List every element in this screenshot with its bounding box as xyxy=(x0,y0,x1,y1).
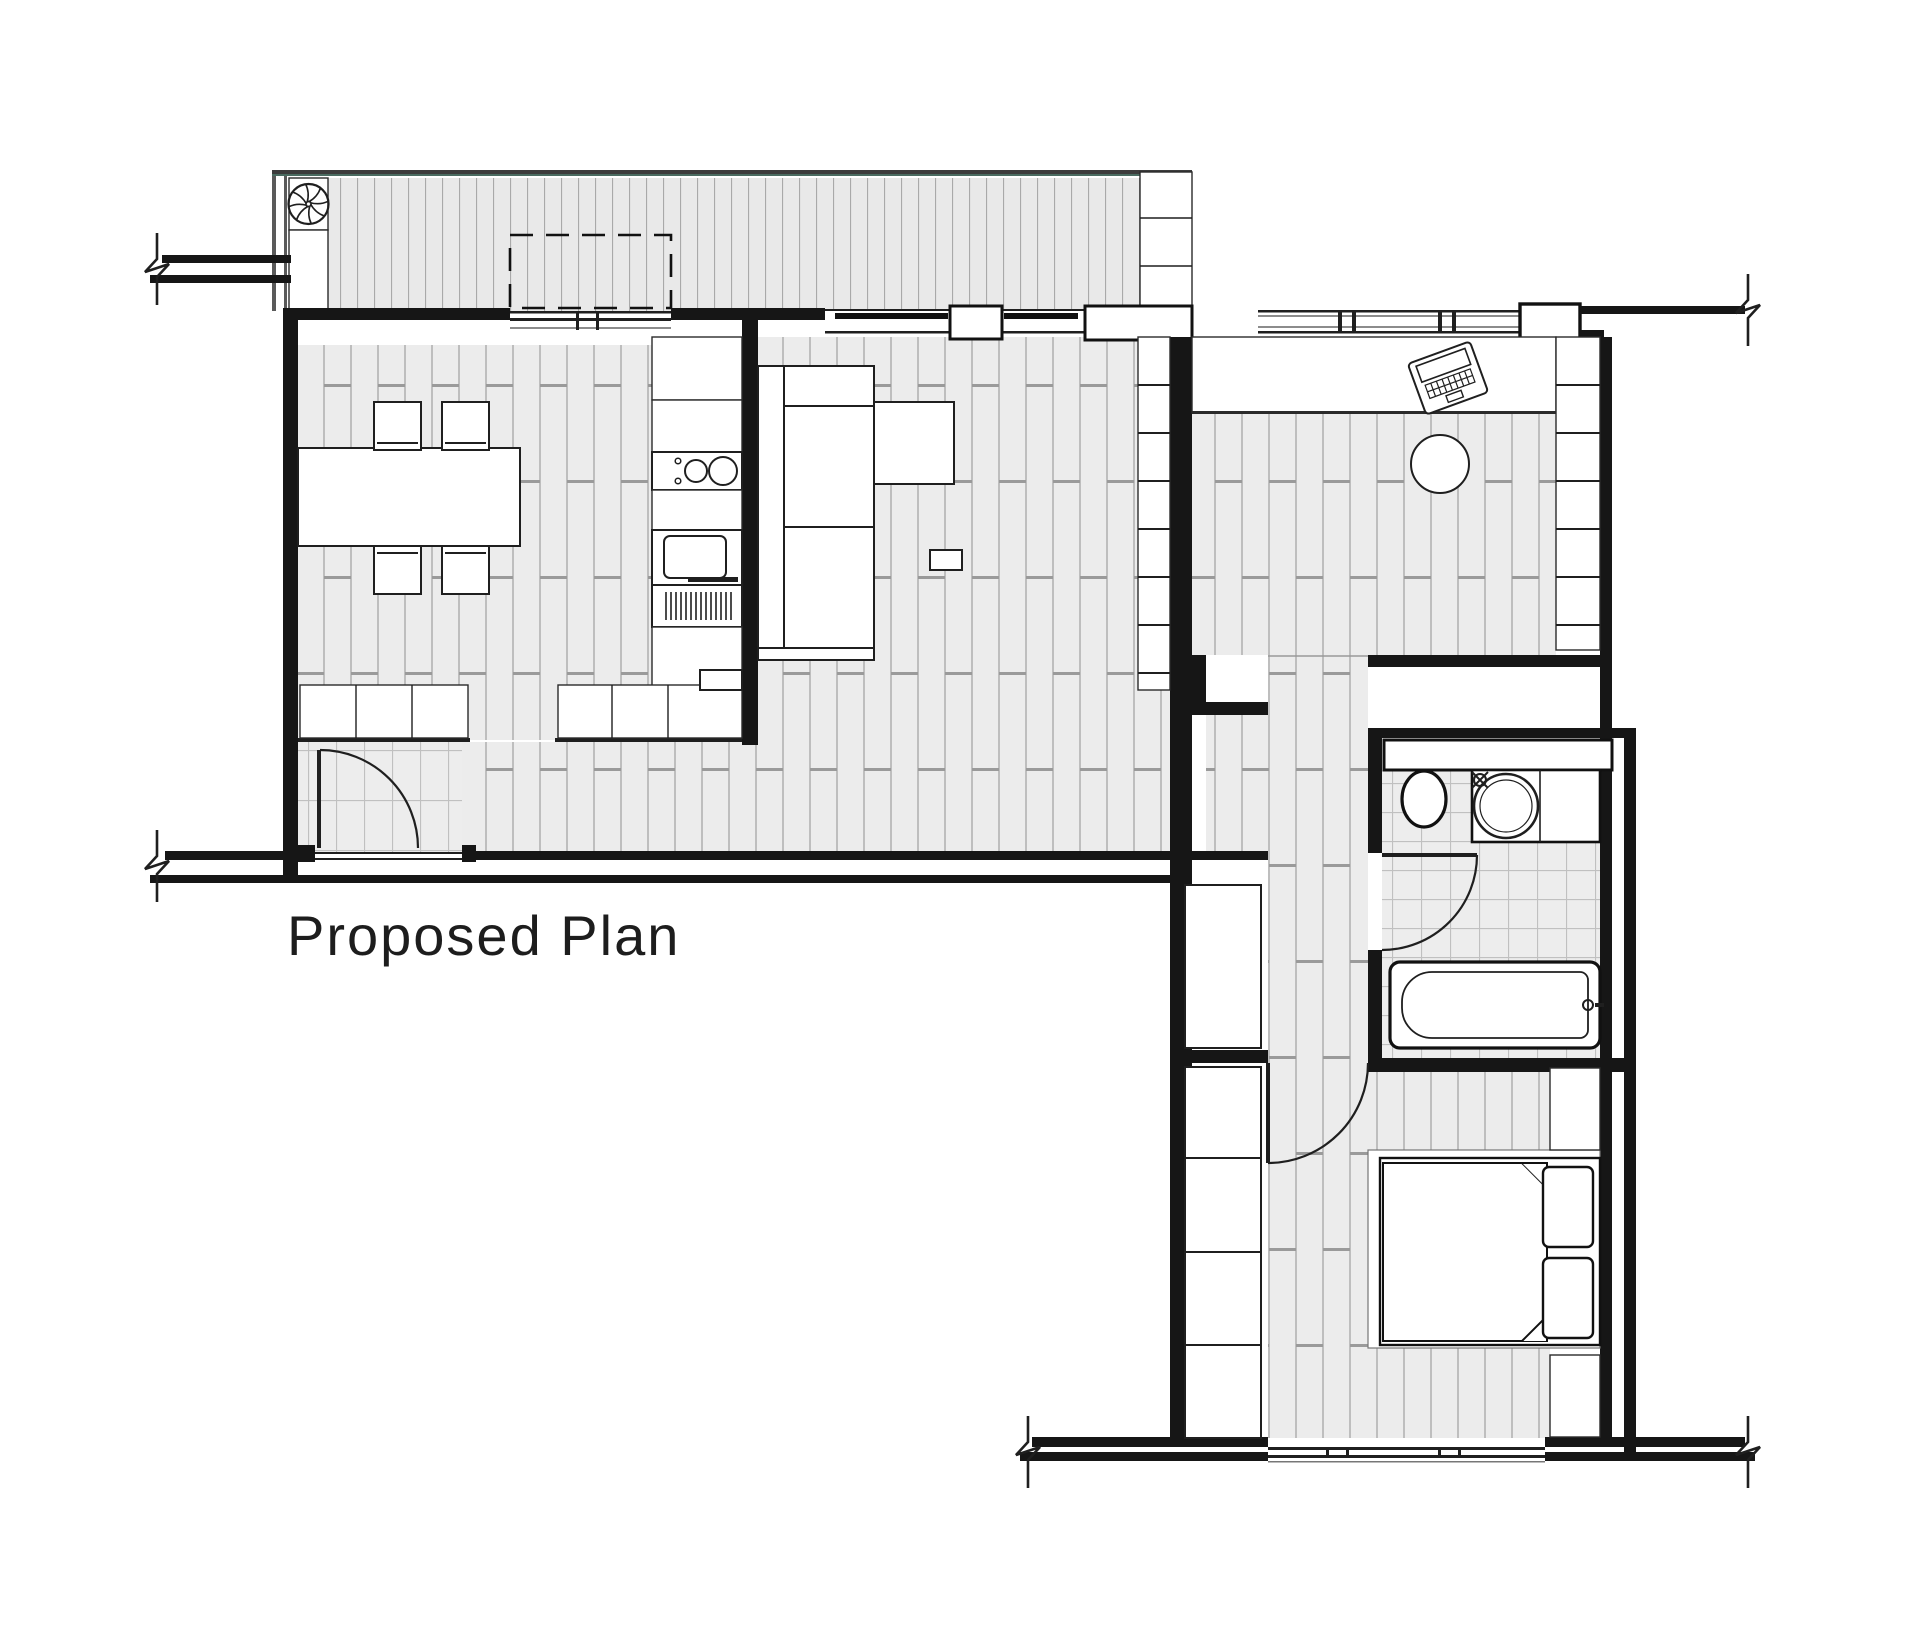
toilet-icon xyxy=(1402,771,1446,827)
bedroom-door-leaf xyxy=(1266,1063,1270,1163)
pillow xyxy=(1543,1258,1593,1338)
bed xyxy=(1380,1158,1600,1345)
terrace-top-wall xyxy=(272,170,1192,174)
plan-title: Proposed Plan xyxy=(287,904,680,967)
kitchen-window xyxy=(510,311,671,330)
terrace-top-accent-line xyxy=(272,174,1192,176)
wardrobe-unit xyxy=(1185,1252,1261,1345)
wall-break-top-left xyxy=(145,233,169,305)
basin-unit xyxy=(1472,770,1600,842)
wall-bedroom-north xyxy=(1181,1050,1268,1063)
stool xyxy=(1411,435,1469,493)
wall-bedroom-south-outer-left xyxy=(1020,1452,1268,1461)
wall-exterior-top-right xyxy=(1580,306,1745,314)
wall-kitchen-east xyxy=(742,310,758,745)
wall-bathroom-north xyxy=(1368,728,1636,738)
basin-tap-icon xyxy=(1472,772,1488,788)
wall-terrace-south-a xyxy=(283,308,510,320)
wall-south-main xyxy=(462,851,1268,860)
bedside-unit xyxy=(1550,1355,1600,1437)
terrace-left-wall-inner xyxy=(284,176,287,311)
bathroom-wall-cabinet xyxy=(1384,740,1612,770)
wall-duct-south xyxy=(1206,702,1268,715)
corridor-floor xyxy=(1268,655,1368,1063)
entry-door-leaf xyxy=(317,750,321,848)
kitchen-cabinet xyxy=(652,400,742,452)
kitchen-cabinet xyxy=(652,337,742,400)
wall-west xyxy=(283,310,298,883)
wall-break-top-right xyxy=(1736,274,1760,346)
bedside-unit xyxy=(1550,1068,1600,1150)
wall-study-south xyxy=(1368,655,1600,667)
cooktop-icon xyxy=(652,452,742,490)
sofa-armrest xyxy=(758,366,784,648)
wall-south-left xyxy=(165,851,315,860)
pier-study-corner xyxy=(1520,304,1580,340)
living-room-floor-south xyxy=(462,742,758,855)
terrace-duct xyxy=(289,230,328,311)
desk xyxy=(1192,337,1556,413)
wardrobe xyxy=(1185,885,1261,1438)
side-table xyxy=(930,550,962,570)
kitchen-counter-run xyxy=(652,337,742,689)
oven-icon xyxy=(652,530,742,585)
study-wall-shelving xyxy=(1556,337,1600,650)
pier-living-window xyxy=(950,306,1002,339)
entry-floor-tiles xyxy=(298,742,462,853)
wall-neighbor-stub-upper xyxy=(162,255,291,263)
desk-edge xyxy=(1192,411,1556,414)
corridor-floor-nook xyxy=(1206,715,1268,855)
floor-plan-page: Proposed Plan xyxy=(0,0,1920,1637)
wardrobe-unit xyxy=(1185,1158,1261,1252)
wall-break-bottom-right xyxy=(1736,1416,1760,1488)
floor-plan-canvas: Proposed Plan xyxy=(0,0,1920,1637)
wall-bathroom-west-lower xyxy=(1368,950,1382,1072)
wall-neighbor-stub-lower xyxy=(150,275,291,283)
bathtub-icon xyxy=(1390,962,1604,1048)
bedroom-window xyxy=(1268,1447,1545,1463)
mattress xyxy=(1383,1163,1547,1341)
wardrobe-unit xyxy=(1185,1345,1261,1438)
sofa-cushion xyxy=(784,527,874,648)
terrace-end-pier xyxy=(1140,172,1192,311)
wall-bedroom-south-right xyxy=(1545,1437,1745,1447)
kitchen-cabinet xyxy=(652,490,742,530)
wall-east-inner xyxy=(1600,337,1612,1445)
kitchen-counter-return xyxy=(700,670,742,690)
study-floor xyxy=(1192,413,1556,655)
sofa-chaise xyxy=(874,402,954,484)
pillow xyxy=(1543,1167,1593,1247)
wall-east-outer xyxy=(1624,728,1636,1461)
sofa-base xyxy=(758,648,874,660)
wall-bathroom-west-upper xyxy=(1368,728,1382,853)
study-window xyxy=(1258,310,1520,334)
terrace-deck xyxy=(328,178,1140,311)
wall-duct-west xyxy=(1192,655,1206,715)
wall-south-outer xyxy=(150,875,1188,883)
vent-grill-icon xyxy=(652,585,742,627)
terrace-left-wall-outer xyxy=(272,176,276,311)
dining-table xyxy=(298,448,520,546)
wardrobe-unit xyxy=(1185,1067,1261,1158)
wall-bedroom-south-outer-right xyxy=(1545,1452,1755,1461)
bathroom-door-leaf xyxy=(1382,853,1477,857)
sofa-cushion xyxy=(784,406,874,527)
living-wall-shelving xyxy=(1138,337,1170,690)
wall-break-bottom-left xyxy=(145,830,169,902)
pier-living-study xyxy=(1085,306,1192,340)
wardrobe-unit xyxy=(1185,885,1261,1048)
wall-break-bottom-left-bedroom xyxy=(1016,1416,1040,1488)
